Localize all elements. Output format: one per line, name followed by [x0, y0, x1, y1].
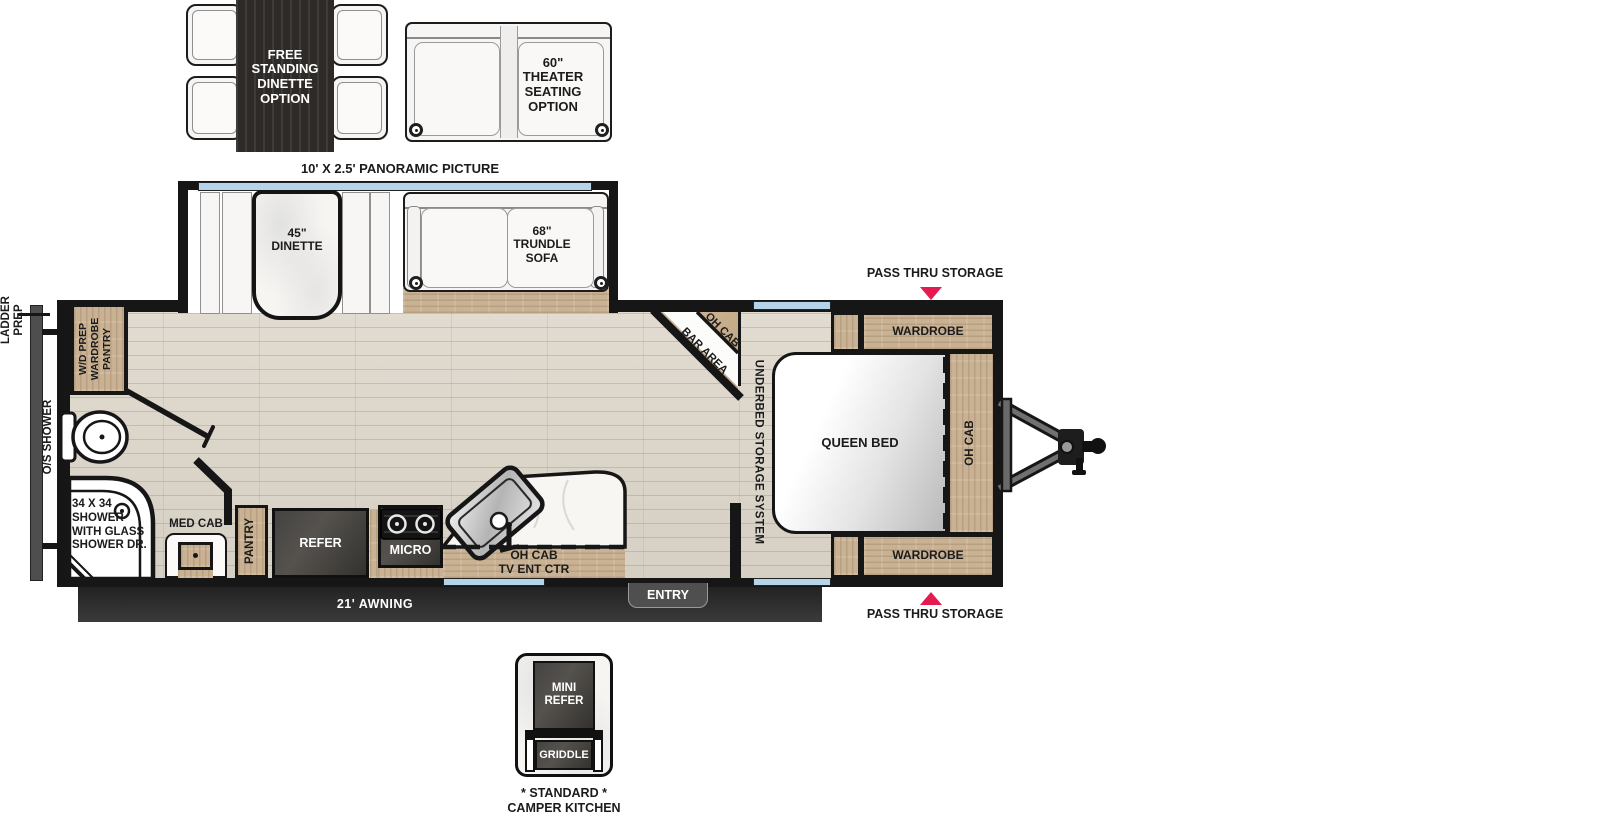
mini-refer	[533, 661, 595, 730]
griddle-rail	[525, 738, 535, 772]
dinette-bench-seat	[222, 192, 252, 314]
dinette-bench-seat	[342, 192, 370, 314]
queen-bed	[772, 352, 948, 534]
sofa-backrest	[405, 194, 607, 209]
camper-kitchen-caption-line2: CAMPER KITCHEN	[474, 801, 654, 816]
dinette-chair	[186, 76, 243, 140]
window-bedroom-top	[753, 301, 831, 310]
cabinet-filler	[370, 510, 378, 578]
trundle-sofa	[403, 192, 609, 292]
pantry-cabinet	[235, 505, 268, 578]
rear-bumper	[30, 305, 43, 581]
pass-thru-top-label: PASS THRU STORAGE	[845, 266, 1025, 280]
dinette-bench-back	[370, 192, 390, 314]
chair-cushion	[192, 82, 237, 134]
bedroom-partition-bottom	[730, 503, 741, 578]
wardrobe-rear	[861, 312, 995, 352]
window-panoramic	[198, 182, 592, 191]
cupholder-icon	[594, 276, 608, 290]
awning-bar	[78, 587, 822, 622]
bedside-cabinet-bottom	[831, 534, 861, 578]
chair-cushion	[192, 10, 237, 60]
bumper-bracket	[42, 543, 58, 549]
griddle-rail	[593, 738, 603, 772]
pass-thru-arrow-down-icon	[920, 287, 942, 300]
wardrobe-front	[861, 534, 995, 578]
dinette-chair	[331, 4, 388, 66]
sofa-cushion	[507, 208, 594, 288]
oh-cab-bedroom	[948, 352, 995, 534]
sink-drain-icon	[193, 553, 198, 558]
os-shower-label: O/S SHOWER	[42, 382, 56, 492]
dinette-chair	[186, 4, 243, 66]
refrigerator	[272, 508, 369, 578]
cupholder-icon	[409, 276, 423, 290]
dinette-table	[252, 190, 342, 320]
griddle	[535, 740, 593, 770]
ladder-prep-pointer	[18, 313, 50, 316]
cupholder-icon	[409, 123, 423, 137]
panoramic-picture-label: 10' X 2.5' PANORAMIC PICTURE	[290, 162, 510, 177]
trailer-hitch-icon	[999, 399, 1106, 491]
sofa-cushion	[414, 42, 500, 136]
dinette-bench-back	[200, 192, 220, 314]
bedside-cabinet-top	[831, 312, 861, 352]
sofa-cushion	[421, 208, 508, 288]
bumper-bracket	[42, 329, 58, 335]
theater-seating-sofa	[405, 22, 612, 142]
pass-thru-bottom-label: PASS THRU STORAGE	[845, 607, 1025, 621]
camper-kitchen-caption: * STANDARD * CAMPER KITCHEN	[474, 786, 654, 816]
oh-cab-tv-ent-ctr-cabinet	[443, 548, 625, 578]
microwave-cabinet	[378, 505, 443, 568]
sofa-cushion	[518, 42, 604, 136]
wall-front	[995, 300, 1003, 587]
camper-kitchen-caption-line1: * STANDARD *	[474, 786, 654, 801]
microwave-base	[378, 568, 443, 578]
pass-thru-arrow-up-icon	[920, 592, 942, 605]
dinette-chair	[331, 76, 388, 140]
bedroom-partition-top	[730, 312, 741, 386]
med-cab-vanity	[165, 533, 227, 578]
wall-rear	[57, 300, 70, 587]
chair-cushion	[337, 10, 382, 60]
camper-kitchen-rail-bar	[525, 730, 603, 738]
window-bedroom-bottom	[753, 578, 831, 586]
free-standing-dinette-table	[236, 0, 334, 152]
sofa-console	[500, 26, 518, 138]
chair-cushion	[337, 82, 382, 134]
vanity-base	[178, 570, 213, 578]
wd-prep-wardrobe-pantry-cabinet	[70, 303, 128, 395]
window-kitchen	[443, 578, 545, 586]
cupholder-icon	[595, 123, 609, 137]
entry-door	[628, 583, 708, 608]
ladder-prep-label: LADDER PREP	[0, 294, 28, 346]
floorplan-canvas: FREE STANDING DINETTE OPTION 60" THEATER…	[0, 0, 1600, 816]
